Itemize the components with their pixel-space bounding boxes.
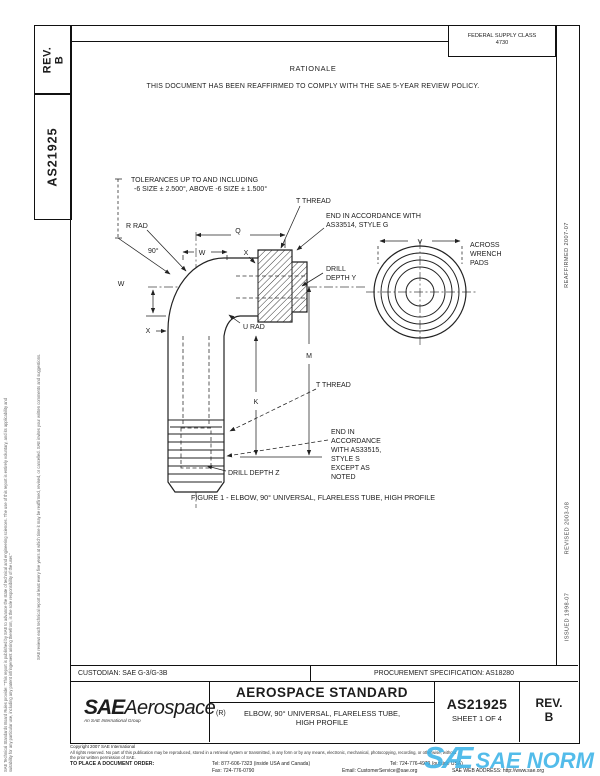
doc-number-box: AS21925 (34, 93, 72, 220)
fax: Fax: 724-776-0790 (212, 768, 254, 774)
label-x-top: X (244, 250, 249, 257)
reaffirmed-date: REAFFIRMED 2007-07 (556, 190, 578, 320)
label-end-bot-5: EXCEPT AS (331, 465, 370, 472)
header-rule (70, 41, 448, 42)
rev-cell: REV. B (520, 682, 578, 742)
fsc-value: 4730 (449, 40, 555, 47)
label-t-thread-right: T THREAD (316, 382, 351, 389)
left-disclaimer-text-1: SAE Technical Standards Board Rules prov… (3, 390, 13, 772)
nut-cross-section (258, 250, 292, 322)
thread-tip (292, 262, 307, 312)
label-across-2: WRENCH (470, 251, 502, 258)
document-page: SAE Technical Standards Board Rules prov… (0, 0, 600, 776)
doc-number-cell: AS21925 SHEET 1 OF 4 (435, 682, 520, 742)
figure-caption: FIGURE 1 - ELBOW, 90° UNIVERSAL, FLARELE… (191, 493, 435, 502)
label-end-bot-3: WITH AS33515, (331, 447, 381, 454)
label-v: V (418, 239, 423, 246)
revised-date: REVISED 2003-08 (556, 478, 578, 578)
procurement-text: PROCUREMENT SPECIFICATION: AS18280 (311, 670, 577, 677)
label-m: M (306, 353, 312, 360)
custodian-row: CUSTODIAN: SAE G-3/G-3B PROCUREMENT SPEC… (70, 665, 578, 682)
email: Email: CustomerService@sae.org (342, 768, 417, 774)
federal-supply-class-box: FEDERAL SUPPLY CLASS 4730 (448, 25, 556, 57)
watermark-text: SAE NORM (475, 748, 594, 774)
label-drill-depth-z: DRILL DEPTH Z (228, 470, 280, 477)
elbow-side-view (168, 250, 307, 492)
sae-logo-cell: SAEAerospace An SAE International Group (70, 682, 210, 742)
rationale-title: RATIONALE (70, 64, 556, 73)
label-90-deg: 90° (148, 247, 159, 255)
label-k: K (254, 399, 259, 406)
custodian-text: CUSTODIAN: SAE G-3/G-3B (78, 670, 167, 677)
standard-type: AEROSPACE STANDARD (210, 682, 434, 703)
label-end-bot-4: STYLE S (331, 456, 360, 463)
label-w-top: W (199, 250, 206, 257)
revised-date-text: REVISED 2003-08 (564, 502, 570, 555)
label-end-top-1: END IN ACCORDANCE WITH (326, 213, 421, 220)
label-w-left: W (118, 281, 125, 288)
label-tolerances-2: -6 SIZE ± 2.500°, ABOVE -6 SIZE ± 1.500° (134, 185, 267, 193)
revision-mark: (R) (216, 710, 226, 717)
rev-cell-value: B (520, 710, 578, 724)
fsc-label: FEDERAL SUPPLY CLASS (449, 33, 555, 40)
label-drill-y-1: DRILL (326, 266, 346, 273)
sae-aerospace-logo: SAEAerospace An SAE International Group (84, 696, 215, 723)
watermark-sae-logo: SÆ (424, 740, 472, 776)
tel-inside: Tel: 877-606-7323 (inside USA and Canada… (212, 761, 310, 767)
label-across-3: PADS (470, 260, 489, 267)
standard-title-cell: AEROSPACE STANDARD (R) ELBOW, 90° UNIVER… (210, 682, 435, 742)
rev-cell-label: REV. (520, 696, 578, 710)
rev-label: REV. (41, 47, 53, 74)
label-q: Q (235, 228, 241, 235)
rev-box: REV. B (34, 25, 72, 95)
label-r-rad: R RAD (126, 223, 148, 230)
standard-title-line1: ELBOW, 90° UNIVERSAL, FLARELESS TUBE, (210, 709, 434, 718)
logo-sae-text: SAE (84, 696, 124, 719)
label-tolerances-1: TOLERANCES UP TO AND INCLUDING (131, 177, 258, 184)
rationale-statement: THIS DOCUMENT HAS BEEN REAFFIRMED TO COM… (70, 83, 556, 90)
order-label: TO PLACE A DOCUMENT ORDER: (70, 761, 154, 767)
label-t-thread-top: T THREAD (296, 198, 331, 205)
label-drill-y-2: DEPTH Y (326, 275, 357, 282)
label-end-bot-1: END IN (331, 429, 355, 436)
sheet-number: SHEET 1 OF 4 (435, 714, 519, 723)
left-disclaimer-text-2: SAE reviews each technical report at lea… (36, 232, 41, 660)
label-end-top-2: AS33514, STYLE G (326, 222, 388, 229)
label-across-1: ACROSS (470, 242, 500, 249)
logo-aerospace-text: Aerospace (124, 697, 215, 719)
figure-1-drawing: TOLERANCES UP TO AND INCLUDING -6 SIZE ±… (70, 148, 556, 516)
dimension-lines (115, 179, 462, 471)
sae-norm-watermark: SÆ SAE NORM (424, 740, 594, 776)
label-x-left: X (146, 328, 151, 335)
issued-date: ISSUED 1998-07 (556, 572, 578, 662)
standard-title-line2: HIGH PROFILE (210, 718, 434, 727)
rev-value: B (53, 47, 65, 74)
label-end-bot-2: ACCORDANCE (331, 438, 381, 445)
title-block: SAEAerospace An SAE International Group … (70, 682, 578, 742)
doc-number-vertical: AS21925 (46, 127, 60, 186)
title-block-doc-number: AS21925 (435, 696, 519, 712)
copyright-text: Copyright 2007 SAE International (70, 744, 135, 749)
label-u-rad: U RAD (243, 324, 265, 331)
issued-date-text: ISSUED 1998-07 (564, 593, 570, 642)
reaffirmed-date-text: REAFFIRMED 2007-07 (564, 222, 570, 288)
label-end-bot-6: NOTED (331, 474, 356, 481)
